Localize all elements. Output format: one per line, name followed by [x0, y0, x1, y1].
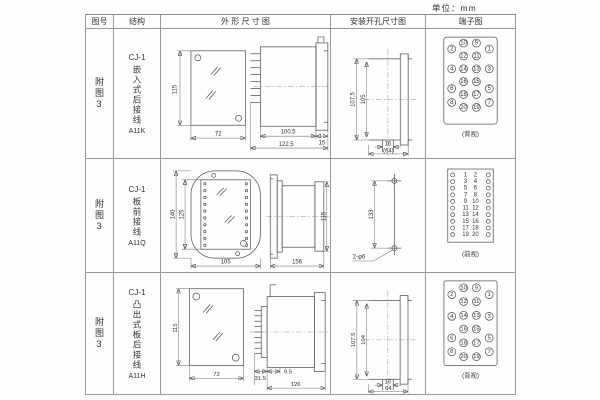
hole-spec-label: 2-φ6	[353, 255, 366, 261]
row2-fig-no: 附图3	[86, 159, 114, 273]
terminal-number: 10	[460, 285, 467, 291]
terminal-number: 14	[460, 66, 467, 72]
terminal-number: 9	[475, 285, 478, 291]
dim-hole-pitch: 133	[369, 209, 375, 220]
terminal-number: 19	[462, 232, 469, 238]
dim-inner-height: 125	[180, 209, 186, 220]
dim-span-width: 64	[385, 386, 392, 392]
terminal-grid: 1234567891011121314151617181920	[451, 172, 491, 238]
document-page: { "unit_label": "单位：mm", "table": { "hea…	[0, 0, 600, 400]
row3-install-drawing: 107.5 104 16 64	[331, 273, 426, 395]
terminal-circle	[486, 206, 490, 210]
fig-no-text: 附图3	[93, 77, 106, 111]
row3-outline-drawing: 115 72 31.5	[161, 273, 331, 395]
terminal-number: 15	[473, 79, 480, 85]
terminal-circle	[451, 180, 455, 184]
mount-desc-text: 嵌入式后接线	[131, 65, 143, 125]
terminal-number: 16	[472, 219, 479, 225]
terminal-number: 7	[488, 100, 491, 106]
terminal-circle	[486, 173, 490, 177]
terminal-circle	[486, 233, 490, 237]
type-code-text: A11K	[129, 128, 146, 135]
terminal-grid: 2468101214161820911131517191357	[448, 39, 493, 111]
terminal-number: 2	[450, 47, 453, 53]
terminal-number: 17	[473, 340, 480, 346]
holes	[387, 174, 401, 255]
terminal-number: 18	[472, 225, 479, 231]
dim-pin-length: 31.5	[255, 376, 267, 382]
terminal-circle	[451, 213, 455, 217]
terminal-number: 17	[462, 225, 469, 231]
dim-front-width: 72	[213, 372, 220, 378]
row1-fig-no: 附图3	[86, 29, 114, 159]
terminal-number: 2	[450, 292, 453, 298]
terminal-number: 18	[460, 92, 467, 98]
terminal-number: 7	[464, 192, 467, 198]
fig-no-text: 附图3	[93, 317, 106, 351]
row1-outline-drawing: 115 72 100.5 15	[161, 29, 331, 159]
terminal-number: 13	[473, 313, 480, 319]
outline-dimension-diagram: 140 125 105 156 115	[161, 159, 330, 272]
dim-front-width: 72	[215, 132, 222, 138]
terminal-number: 1	[488, 47, 491, 53]
dim-front-height: 115	[173, 84, 179, 94]
terminal-circle	[451, 173, 455, 177]
row2-structure: CJ-1 板前接线 A11Q	[114, 159, 161, 273]
unit-label: 单位：mm	[432, 2, 477, 14]
terminal-circle	[486, 226, 490, 230]
terminal-number: 15	[462, 219, 469, 225]
row2-terminal-drawing: 1234567891011121314151617181920 (前视)	[426, 159, 516, 273]
outline-dimension-diagram: 115 72 100.5 15	[161, 29, 330, 158]
dim-outer-height: 107.5	[351, 91, 357, 107]
dim-total-length: 122.5	[279, 142, 295, 148]
cutout-dimensions: 107.5 105 16 (64)	[351, 59, 408, 156]
terminal-number: 17	[473, 92, 480, 98]
terminal-number: 2	[474, 172, 477, 178]
fig-no-text: 附图3	[93, 199, 106, 233]
hole-dimensions: 133 2-φ6	[352, 181, 393, 261]
terminal-number: 11	[473, 299, 479, 305]
header-install: 安装开孔尺寸图	[331, 15, 426, 29]
terminal-number: 20	[472, 232, 479, 238]
view-label: (前视)	[462, 249, 479, 258]
dim-slot-width: 16	[385, 380, 392, 386]
dim-front-height: 115	[173, 323, 179, 333]
terminal-number: 14	[472, 212, 479, 218]
mount-desc-text: 板前接线	[131, 197, 143, 237]
terminal-number: 19	[473, 105, 480, 111]
terminal-number: 9	[464, 199, 468, 205]
dim-side-height: 115	[321, 211, 327, 221]
terminal-number: 8	[474, 192, 478, 198]
view-label: (背视)	[462, 129, 479, 138]
terminal-circle	[451, 233, 455, 237]
type-code-text: A11H	[129, 373, 146, 380]
side-view: 100.5 15 122.5	[250, 37, 329, 151]
terminal-number: 15	[473, 327, 480, 333]
terminal-grid: 2468101214161820911131517191357	[448, 284, 493, 361]
view-label: (背视)	[462, 370, 479, 379]
terminal-circle	[486, 213, 490, 217]
header-terminal: 端子图	[426, 15, 516, 29]
row3-structure: CJ-1 凸出式板后接线 A11H	[114, 273, 161, 395]
install-cutout-diagram: 107.5 104 16 64	[331, 273, 425, 394]
dim-inner-height: 104	[361, 334, 367, 345]
dim-inner-height: 105	[361, 94, 367, 105]
dim-flange-depth: 15	[319, 141, 326, 147]
row1-structure: CJ-1 嵌入式后接线 A11K	[114, 29, 161, 159]
terminal-circle	[451, 206, 455, 210]
terminal-number: 10	[460, 41, 467, 47]
side-view: 31.5 9.5 126	[250, 285, 329, 390]
terminal-circle	[486, 186, 490, 190]
dim-body-length: 100.5	[281, 130, 297, 136]
front-view: 115 72	[173, 51, 246, 141]
spec-table: 图号 结构 外 形 尺 寸 图 安装开孔尺寸图 端子图 附图3 CJ-1 嵌入式…	[85, 14, 516, 395]
terminal-number: 18	[460, 340, 467, 346]
terminal-circle	[486, 199, 490, 203]
install-cutout-diagram: 107.5 105 16 (64)	[331, 29, 425, 158]
dim-offset: 9.5	[284, 369, 293, 375]
row2-install-drawing: 133 2-φ6	[331, 159, 426, 273]
row3-fig-no: 附图3	[86, 273, 114, 395]
terminal-circle	[486, 193, 490, 197]
header-fig-no: 图号	[86, 15, 114, 29]
terminal-circle	[486, 180, 490, 184]
header-structure: 结构	[114, 15, 161, 29]
terminal-number: 12	[472, 206, 479, 212]
row2-outline-drawing: 140 125 105 156 115	[161, 159, 331, 273]
terminal-number: 12	[460, 299, 467, 305]
terminal-number: 19	[473, 354, 480, 360]
terminal-number: 16	[460, 327, 467, 333]
row1-terminal-drawing: 2468101214161820911131517191357 (背视)	[426, 29, 516, 159]
terminal-number: 20	[460, 354, 467, 360]
terminal-number: 4	[474, 179, 478, 185]
dim-front-width: 105	[221, 260, 232, 266]
terminal-circle	[486, 219, 490, 223]
terminal-number: 7	[488, 349, 491, 355]
outline-dimension-diagram: 115 72 31.5	[161, 273, 330, 394]
terminal-number: 6	[474, 186, 478, 192]
install-holes-diagram: 133 2-φ6	[331, 159, 425, 272]
terminal-circle	[451, 219, 455, 223]
terminal-number: 3	[464, 179, 468, 185]
terminal-number: 14	[460, 313, 467, 319]
row3-terminal-drawing: 2468101214161820911131517191357 (背视)	[426, 273, 516, 395]
model-text: CJ-1	[129, 288, 146, 297]
terminal-circle	[451, 226, 455, 230]
terminal-number: 10	[472, 199, 479, 205]
type-code-text: A11Q	[128, 240, 145, 247]
terminal-circle	[451, 186, 455, 190]
front-view: 140 125 105	[171, 171, 261, 269]
terminal-number: 13	[462, 212, 469, 218]
terminal-diagram: 2468101214161820911131517191357 (背视)	[426, 29, 515, 158]
terminal-number: 1	[464, 172, 467, 178]
model-text: CJ-1	[129, 53, 146, 62]
cutout-shape	[365, 49, 418, 156]
dim-span-width: (64)	[383, 148, 394, 154]
terminal-number: 13	[473, 66, 480, 72]
terminal-number: 5	[464, 186, 468, 192]
side-view: 156 115	[266, 175, 329, 269]
terminal-number: 12	[460, 53, 467, 59]
row1-install-drawing: 107.5 105 16 (64)	[331, 29, 426, 159]
dim-outer-height: 140	[171, 209, 177, 220]
terminal-diagram: 2468101214161820911131517191357 (背视)	[426, 273, 515, 394]
model-text: CJ-1	[129, 185, 146, 194]
dim-outer-height: 107.5	[351, 332, 357, 347]
terminal-circle	[451, 193, 455, 197]
terminal-circle	[451, 199, 455, 203]
terminal-number: 20	[460, 105, 467, 111]
terminal-number: 16	[460, 79, 467, 85]
terminal-number: 11	[473, 53, 479, 59]
dim-side-length: 156	[292, 260, 303, 266]
terminal-number: 11	[462, 206, 468, 212]
mount-desc-text: 凸出式板后接线	[131, 300, 143, 370]
terminal-number: 1	[488, 292, 491, 298]
front-view: 115 72	[173, 289, 243, 381]
terminal-diagram: 1234567891011121314151617181920 (前视)	[426, 159, 515, 272]
cutout-shape	[365, 291, 418, 393]
dim-slot-width: 16	[385, 141, 392, 147]
dim-total-length: 126	[291, 382, 302, 388]
header-outline: 外 形 尺 寸 图	[161, 15, 331, 29]
